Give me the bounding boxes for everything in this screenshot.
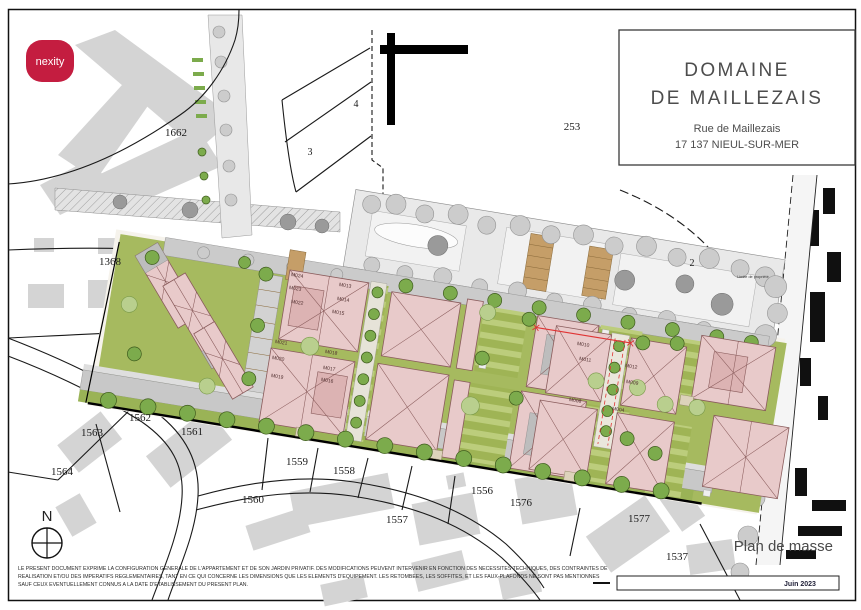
project-title-line1: DOMAINE [684,60,789,81]
disclaimer-line2: REALISATION ET/OU DES IMPERATIFS REGLEME… [18,574,600,580]
plan-page: N 1662 1368 4 3 253 2 1563 1564 1562 156… [0,0,861,610]
parcel-label: 1558 [333,465,356,477]
project-address-line1: Rue de Maillezais [694,123,781,135]
parcel-label: 1563 [81,427,104,439]
parcel-label: 1561 [181,426,203,438]
existing-street-hatched [55,188,340,233]
nexity-logo: nexity [26,40,74,82]
project-title-line2: DE MAILLEZAIS [651,88,824,109]
plan-type-label: Plan de masse [734,538,833,555]
parcel-label: 1560 [242,494,265,506]
site-plan-drawing: N 1662 1368 4 3 253 2 1563 1564 1562 156… [0,0,861,610]
title-block: DOMAINE DE MAILLEZAIS Rue de Maillezais … [619,30,855,165]
parcel-label: 1662 [165,127,187,139]
parcel-label: 1557 [386,514,409,526]
nexity-logo-text: nexity [36,56,65,68]
north-label: N [42,508,53,525]
parcel-label: 253 [564,121,581,133]
parcel-label: 3 [308,147,313,158]
parcel-label: 1562 [129,412,151,424]
survey-cross [380,33,468,125]
plan-date: Juin 2023 [784,581,816,588]
parcel-label: 1576 [510,497,533,509]
boundary-annotation: Limite de propriété [737,275,768,279]
disclaimer-line1: LE PRESENT DOCUMENT EXPRIME LA CONFIGURA… [18,566,608,572]
parcel-label: 1368 [99,256,122,268]
parcel-label: 2 [690,258,695,269]
parcel-label: 1537 [666,551,689,563]
project-address-line2: 17 137 NIEUL-SUR-MER [675,139,799,151]
parcel-label: 1577 [628,513,651,525]
parcel-label: 1559 [286,456,309,468]
north-compass: N [32,508,62,558]
parcel-label: 4 [354,99,359,110]
disclaimer-line3: SAUF CEUX EVENTUELLEMENT CONNUS A LA DAT… [18,582,248,588]
date-box: Juin 2023 [593,576,839,590]
parcel-label: 1556 [471,485,494,497]
parcel-label: 1564 [51,466,74,478]
